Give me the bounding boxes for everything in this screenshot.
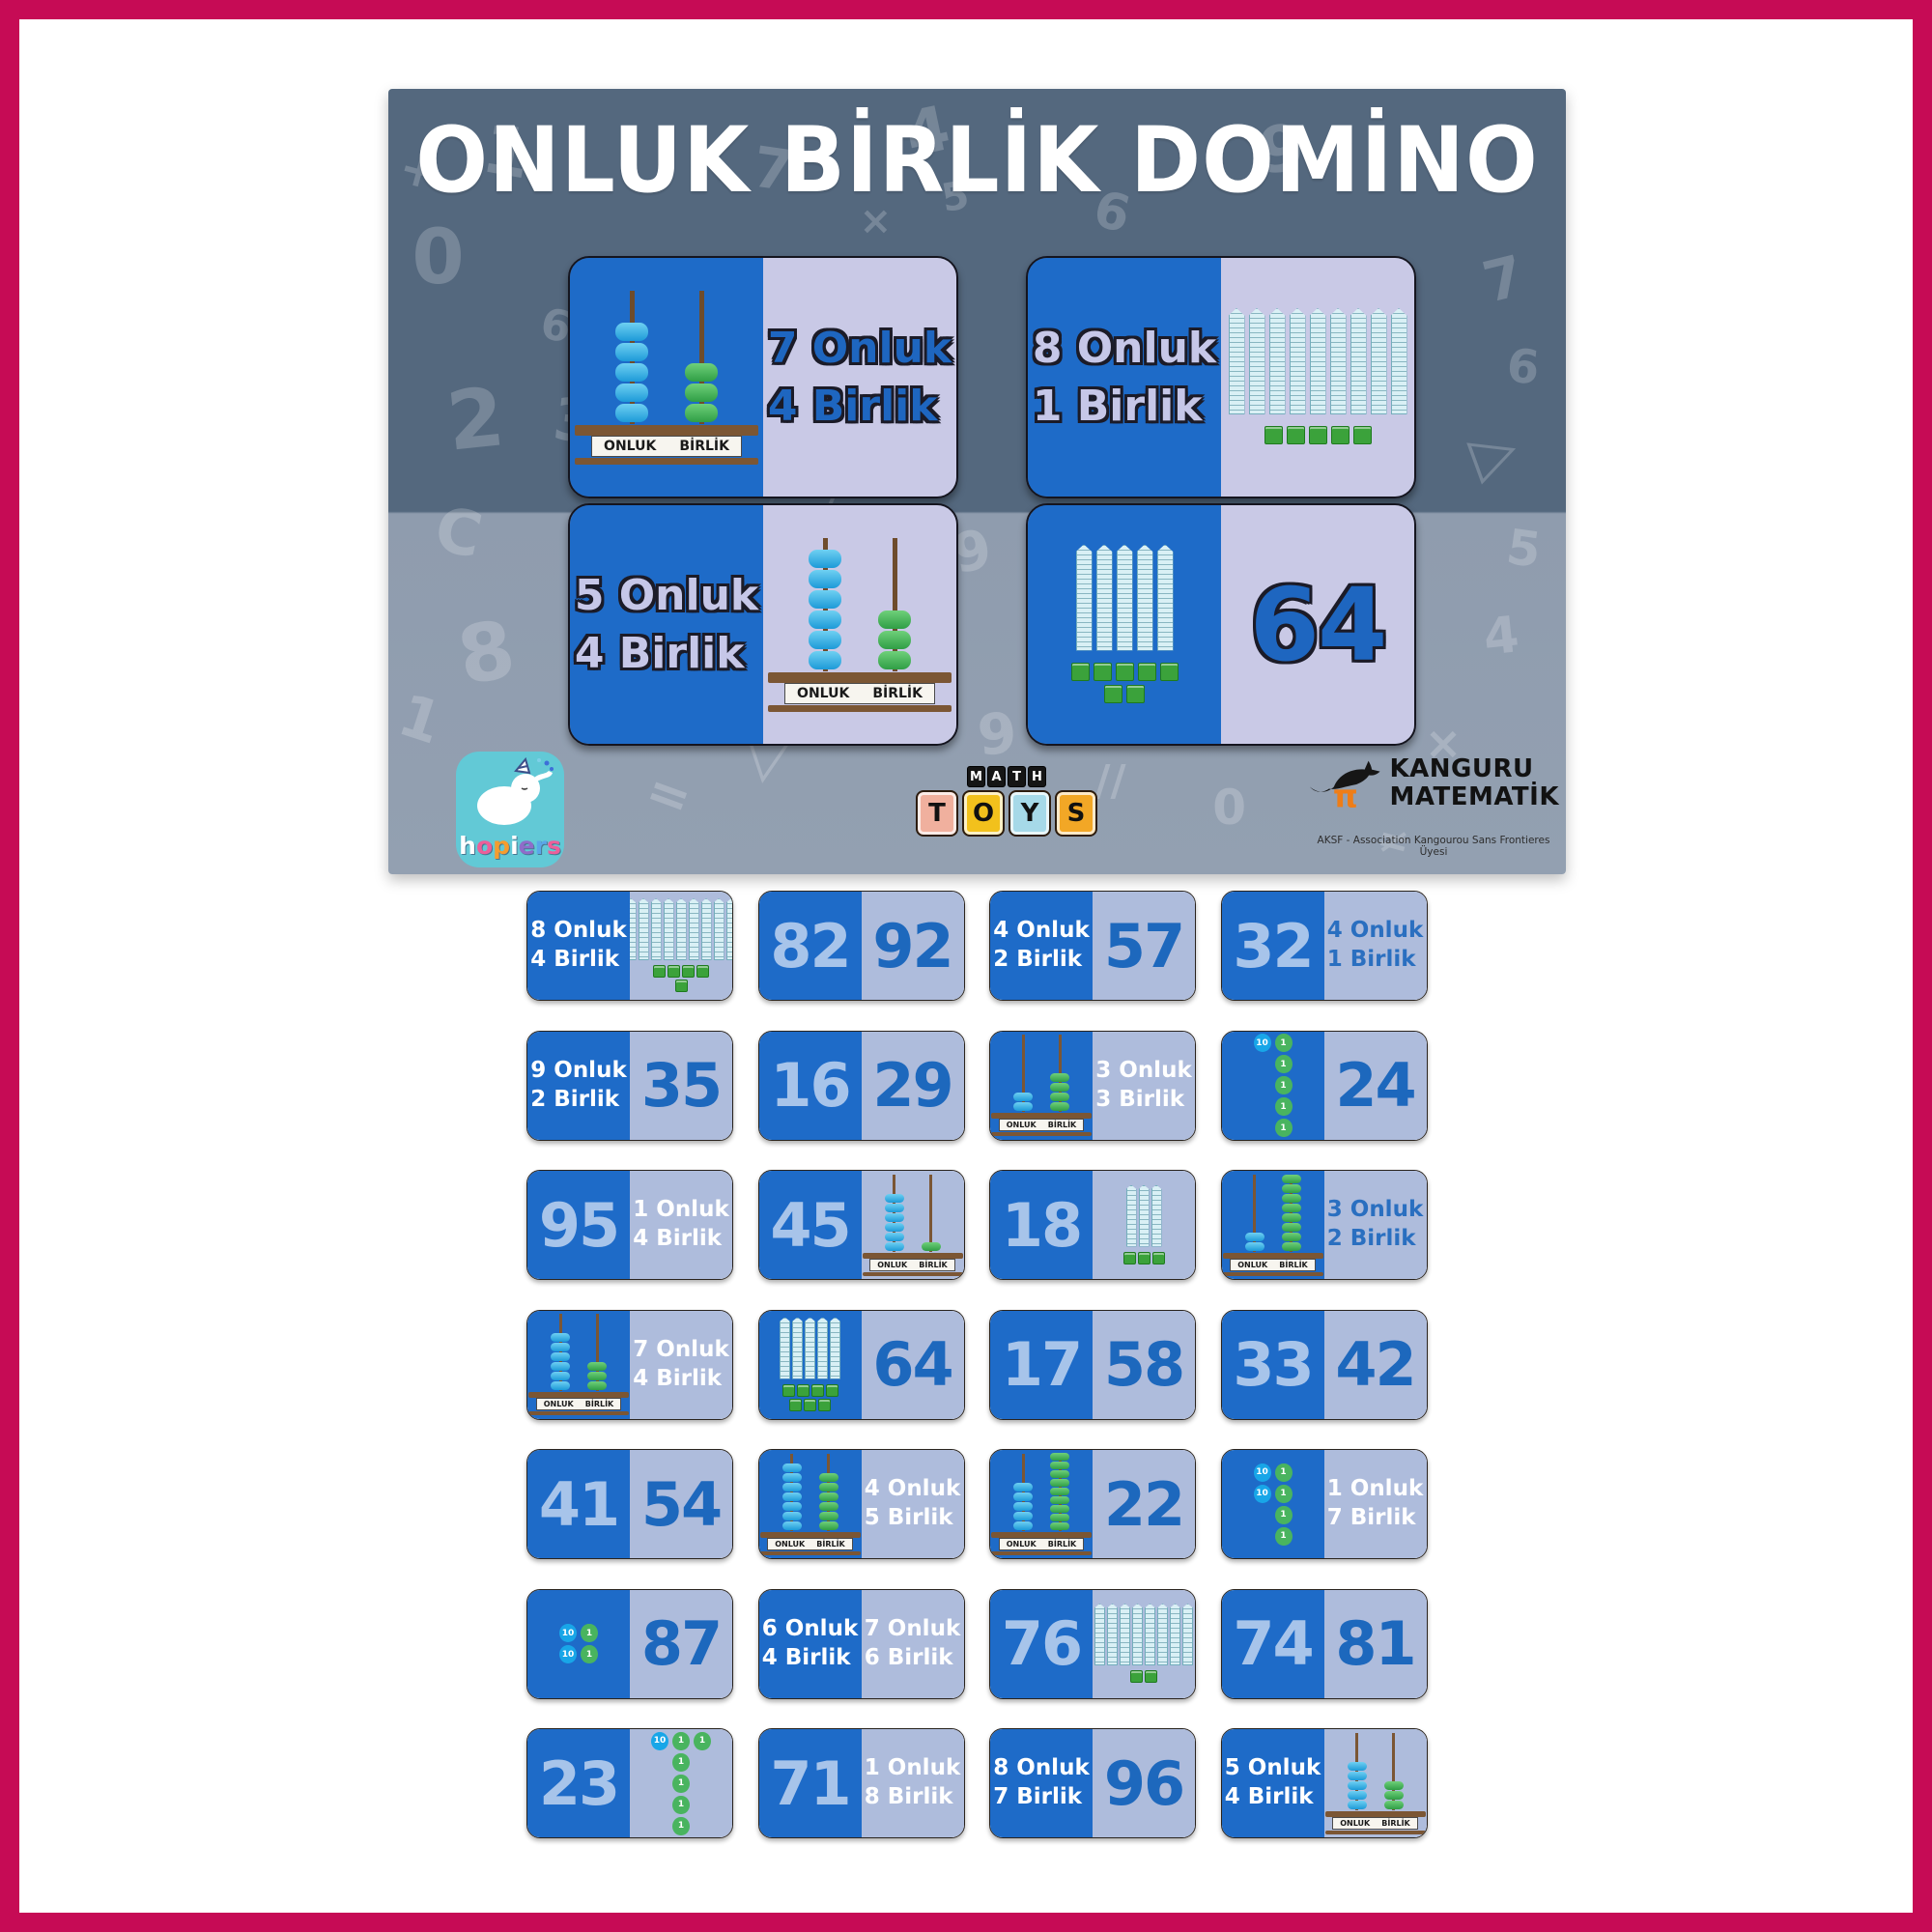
- one-cube: [782, 1384, 795, 1397]
- game-box: 147960+236C81×53176▷549✓▽=9//0×≠○ ONLUK …: [388, 89, 1566, 874]
- abacus-base: [528, 1411, 629, 1415]
- ones-rod: [1281, 1175, 1302, 1252]
- one-counter: 1: [672, 1796, 690, 1814]
- abacus-bead: [1050, 1102, 1069, 1111]
- one-counter: 1: [694, 1732, 711, 1750]
- abacus-bead: [1348, 1781, 1367, 1790]
- one-cube: [653, 965, 666, 978]
- abacus-base: [1223, 1272, 1323, 1276]
- domino-half-label: 1 Onluk7 Birlik: [1324, 1450, 1427, 1558]
- abacus-bead: [615, 404, 648, 422]
- abacus-bead: [809, 651, 841, 669]
- domino-half-label: 5 Onluk4 Birlik: [570, 505, 763, 744]
- domino-half-number: 64: [862, 1311, 964, 1419]
- ten-rod: [1170, 1604, 1180, 1665]
- hopiers-letter: o: [476, 832, 493, 860]
- abacus-bead: [819, 1502, 838, 1511]
- doodle-glyph: 7: [1476, 242, 1530, 316]
- ones-cubes: [647, 964, 715, 993]
- one-cube: [668, 965, 680, 978]
- doodle-glyph: ▷: [1462, 413, 1526, 493]
- abacus-bead: [551, 1333, 570, 1342]
- abacus-bead: [587, 1362, 607, 1371]
- one-cube: [1123, 1252, 1136, 1264]
- doodle-glyph: 0: [1212, 780, 1246, 836]
- ten-rod: [630, 898, 637, 960]
- hopiers-letter: e: [519, 832, 535, 860]
- domino-half-number: 45: [759, 1171, 862, 1279]
- domino-number: 23: [539, 1748, 618, 1819]
- math-letter-tile: H: [1028, 766, 1046, 787]
- domino-half-number: 82: [759, 892, 862, 1000]
- tens-rod: [1244, 1175, 1265, 1252]
- ten-rod: [792, 1318, 803, 1379]
- domino-tile: ONLUKBİRLİK7 Onluk4 Birlik: [526, 1310, 733, 1420]
- ten-rod: [726, 898, 733, 960]
- domino-half-blocks: [1028, 505, 1221, 744]
- domino-half-number: 35: [630, 1032, 732, 1140]
- domino-number: 32: [1233, 911, 1312, 981]
- birlik-label: BİRLİK: [679, 439, 729, 454]
- domino-number: 92: [872, 911, 952, 981]
- abacus-bead: [1050, 1496, 1069, 1504]
- domino-half-number: 24: [1324, 1032, 1427, 1140]
- domino-tile: 1758: [989, 1310, 1196, 1420]
- domino-half-number: 96: [1093, 1729, 1195, 1837]
- ten-rod: [664, 898, 674, 960]
- domino-half-number: 58: [1093, 1311, 1195, 1419]
- one-cube: [1126, 685, 1145, 703]
- domino-number: 71: [770, 1748, 849, 1819]
- domino-half-number: 32: [1222, 892, 1324, 1000]
- domino-half-number: 41: [527, 1450, 630, 1558]
- abacus-bead: [551, 1372, 570, 1380]
- doodle-glyph: 4: [1481, 606, 1521, 667]
- doodle-glyph: 8: [451, 603, 522, 702]
- ten-rod: [1182, 1604, 1193, 1665]
- tens-rod: [1012, 1454, 1034, 1531]
- birlik-label: BİRLİK: [1048, 1540, 1077, 1548]
- one-cube: [682, 965, 695, 978]
- one-counter: 1: [581, 1624, 598, 1642]
- domino-half-number: 81: [1324, 1590, 1427, 1698]
- pi-symbol: π: [1333, 778, 1358, 814]
- kanguru-line1: KANGURU: [1389, 755, 1559, 783]
- ten-rod: [1157, 1604, 1168, 1665]
- domino-half-label: 4 Onluk5 Birlik: [862, 1450, 964, 1558]
- tens-rods: [1094, 1604, 1194, 1665]
- domino-number: 64: [1250, 566, 1386, 684]
- domino-label: 3 Onluk2 Birlik: [1327, 1196, 1424, 1254]
- domino-label: 6 Onluk4 Birlik: [762, 1615, 859, 1673]
- one-cube: [797, 1384, 810, 1397]
- abacus-bead: [1050, 1093, 1069, 1101]
- one-cube: [1071, 663, 1090, 681]
- abacus-bead: [1013, 1492, 1033, 1501]
- domino-half-label: 5 Onluk4 Birlik: [1222, 1729, 1324, 1837]
- abacus-bead: [809, 611, 841, 629]
- abacus-bead: [1050, 1073, 1069, 1082]
- domino-half-label: 7 Onluk4 Birlik: [630, 1311, 732, 1419]
- domino-half-number: 17: [990, 1311, 1093, 1419]
- domino-half-counters: 101111111111: [630, 1729, 732, 1837]
- one-counter: 1: [1275, 1119, 1293, 1137]
- abacus-bead: [885, 1204, 904, 1212]
- kanguru-subtext: AKSF - Association Kangourou Sans Fronti…: [1308, 835, 1559, 858]
- abacus-base: [575, 458, 758, 465]
- tens-rod: [1012, 1035, 1034, 1112]
- ten-rod: [805, 1318, 815, 1379]
- domino-half-label: 4 Onluk2 Birlik: [990, 892, 1093, 1000]
- abacus-bead: [685, 363, 718, 382]
- domino-half-label: 8 Onluk1 Birlik: [1028, 258, 1221, 497]
- abacus-bead: [685, 384, 718, 402]
- domino-tile: ONLUKBİRLİK22: [989, 1449, 1196, 1559]
- abacus-bead: [1050, 1514, 1069, 1521]
- abacus-bead: [1013, 1093, 1033, 1101]
- domino-tile: 8 Onluk4 Birlik: [526, 891, 733, 1001]
- abacus-bead: [587, 1381, 607, 1390]
- domino-tile: 1629: [758, 1031, 965, 1141]
- one-cube: [789, 1399, 802, 1411]
- one-cube: [818, 1399, 831, 1411]
- domino-tile: 23101111111111: [526, 1728, 733, 1838]
- ten-rod: [1107, 1604, 1118, 1665]
- domino-half-counters: 10111111111: [1222, 1032, 1324, 1140]
- birlik-label: BİRLİK: [1381, 1819, 1410, 1828]
- ten-rod: [689, 898, 699, 960]
- math-letter-tile: M: [967, 766, 985, 787]
- domino-half-blocks: [1093, 1171, 1195, 1279]
- hopiers-letter: i: [510, 832, 519, 860]
- ten-counter: 10: [1254, 1463, 1271, 1482]
- domino-half-label: 1 Onluk8 Birlik: [862, 1729, 964, 1837]
- elephant-icon: [466, 757, 554, 827]
- abacus-bead: [782, 1521, 802, 1530]
- abacus-graphic: ONLUKBİRLİK: [528, 1314, 629, 1415]
- domino-half-abacus: ONLUKBİRLİK: [759, 1450, 862, 1558]
- base-ten-blocks: [1094, 1604, 1194, 1684]
- abacus-bead: [1282, 1242, 1301, 1251]
- onluk-label: ONLUK: [1007, 1540, 1037, 1548]
- tens-rod: [550, 1314, 571, 1391]
- abacus-base: [768, 705, 952, 712]
- domino-half-number: 87: [630, 1590, 732, 1698]
- doodle-glyph: C: [429, 494, 488, 573]
- domino-half-number: 76: [990, 1590, 1093, 1698]
- tens-rods: [630, 898, 732, 960]
- math-letter-tile: A: [987, 766, 1006, 787]
- kangaroo-pi-icon: π: [1308, 742, 1389, 825]
- domino-label: 1 Onluk8 Birlik: [865, 1754, 961, 1812]
- math-letter-tiles: MATH: [966, 765, 1047, 788]
- domino-half-number: 23: [527, 1729, 630, 1837]
- domino-half-number: 95: [527, 1171, 630, 1279]
- domino-tile: 6 Onluk4 Birlik7 Onluk6 Birlik: [758, 1589, 965, 1699]
- one-cube: [675, 980, 688, 992]
- math-toys-logo: MATH TOYS: [910, 765, 1103, 838]
- one-counter: 1: [1275, 1097, 1293, 1116]
- domino-tile: 9 Onluk2 Birlik35: [526, 1031, 733, 1141]
- domino-number: 54: [641, 1469, 721, 1540]
- abacus-bead: [809, 550, 841, 568]
- doodle-glyph: 5: [1503, 519, 1545, 579]
- ten-rod: [1371, 308, 1387, 414]
- one-counter: 1: [672, 1753, 690, 1772]
- hopiers-wordmark: hopiers: [459, 832, 561, 860]
- domino-number: 22: [1104, 1469, 1183, 1540]
- domino-tile: 3342: [1221, 1310, 1428, 1420]
- domino-half-number: 64: [1221, 505, 1414, 744]
- domino-half-blocks: [630, 892, 732, 1000]
- base-ten-blocks: [1227, 308, 1409, 446]
- one-cube: [1264, 426, 1283, 444]
- abacus-graphic: ONLUKBİRLİK: [1223, 1175, 1323, 1276]
- abacus-bead: [1050, 1083, 1069, 1092]
- abacus-label-strip: ONLUKBİRLİK: [784, 683, 935, 704]
- birlik-label: BİRLİK: [585, 1400, 614, 1408]
- domino-half-number: 54: [630, 1450, 732, 1558]
- tens-rod: [884, 1175, 905, 1252]
- domino-tile: 10110187: [526, 1589, 733, 1699]
- toys-letter-tile: O: [962, 790, 1005, 837]
- one-cube: [1353, 426, 1372, 444]
- ones-rod: [586, 1314, 608, 1391]
- box-domino: 8 Onluk1 Birlik: [1026, 256, 1416, 498]
- ten-rod: [1145, 1604, 1155, 1665]
- domino-number: 82: [770, 911, 849, 981]
- domino-label: 8 Onluk1 Birlik: [1033, 320, 1216, 435]
- abacus-bead: [885, 1213, 904, 1222]
- abacus-label-strip: ONLUKBİRLİK: [536, 1398, 622, 1410]
- domino-tile: 45ONLUKBİRLİK: [758, 1170, 965, 1280]
- domino-label: 8 Onluk7 Birlik: [993, 1754, 1090, 1812]
- domino-half-number: 18: [990, 1171, 1093, 1279]
- hopiers-letter: r: [535, 832, 547, 860]
- abacus-bead: [1013, 1521, 1033, 1530]
- domino-half-label: 7 Onluk6 Birlik: [862, 1590, 964, 1698]
- abacus-bead: [885, 1194, 904, 1203]
- onluk-label: ONLUK: [797, 686, 849, 701]
- kanguru-line2: MATEMATİK: [1389, 783, 1559, 811]
- abacus-bead: [878, 651, 911, 669]
- one-counter: 1: [1275, 1485, 1293, 1503]
- domino-half-label: 3 Onluk2 Birlik: [1324, 1171, 1427, 1279]
- one-cube: [1309, 426, 1327, 444]
- ten-counter: 10: [1254, 1485, 1271, 1503]
- tens-rods: [1227, 308, 1409, 414]
- abacus-bead: [782, 1492, 802, 1501]
- birlik-label: BİRLİK: [872, 686, 923, 701]
- abacus-label-strip: ONLUKBİRLİK: [1230, 1259, 1316, 1271]
- domino-half-number: 42: [1324, 1311, 1427, 1419]
- ones-cubes: [1110, 1669, 1178, 1684]
- ten-rod: [1096, 545, 1113, 651]
- abacus-base: [575, 425, 758, 436]
- abacus-bead: [1050, 1453, 1069, 1461]
- toys-letter-tiles: TOYS: [914, 788, 1099, 838]
- abacus-bead: [782, 1512, 802, 1520]
- one-counter: 1: [1275, 1527, 1293, 1546]
- domino-half-label: 6 Onluk4 Birlik: [759, 1590, 862, 1698]
- base-ten-blocks: [777, 1318, 844, 1412]
- ones-rod: [1049, 1454, 1070, 1531]
- domino-number: 81: [1335, 1608, 1414, 1679]
- doodle-glyph: 9: [975, 699, 1019, 768]
- domino-tile: 324 Onluk1 Birlik: [1221, 891, 1428, 1001]
- hopiers-logo: hopiers: [456, 752, 564, 867]
- abacus-graphic: ONLUKBİRLİK: [575, 291, 758, 465]
- abacus-graphic: ONLUKBİRLİK: [991, 1035, 1092, 1136]
- doodle-glyph: 1: [390, 681, 449, 757]
- abacus-bead: [615, 363, 648, 382]
- doodle-glyph: 0: [412, 214, 464, 301]
- abacus-graphic: ONLUKBİRLİK: [1325, 1733, 1426, 1834]
- hopiers-letter: s: [547, 832, 561, 860]
- domino-label: 5 Onluk4 Birlik: [1225, 1754, 1321, 1812]
- onluk-label: ONLUK: [544, 1400, 574, 1408]
- ones-rod: [921, 1175, 942, 1252]
- box-domino: 64: [1026, 503, 1416, 746]
- ones-rod: [876, 538, 913, 671]
- abacus-bead: [782, 1502, 802, 1511]
- abacus-bead: [551, 1362, 570, 1371]
- domino-number: 17: [1002, 1329, 1081, 1400]
- abacus-bead: [1282, 1194, 1301, 1203]
- abacus-bead: [1050, 1488, 1069, 1495]
- domino-tile: 5 Onluk4 BirlikONLUKBİRLİK: [1221, 1728, 1428, 1838]
- one-cube: [1138, 663, 1156, 681]
- domino-label: 4 Onluk2 Birlik: [993, 917, 1090, 975]
- ten-rod: [1076, 545, 1093, 651]
- ten-rod: [1330, 308, 1347, 414]
- abacus-bead: [615, 323, 648, 341]
- domino-tile: 10110111111 Onluk7 Birlik: [1221, 1449, 1428, 1559]
- ten-rod: [1132, 1604, 1143, 1665]
- domino-half-label: 3 Onluk3 Birlik: [1093, 1032, 1195, 1140]
- place-value-counters: 1011011111: [1254, 1462, 1293, 1547]
- abacus-bead: [885, 1223, 904, 1232]
- product-photo: 147960+236C81×53176▷549✓▽=9//0×≠○ ONLUK …: [0, 0, 1932, 1932]
- abacus-bead: [1282, 1233, 1301, 1241]
- domino-tile: 18: [989, 1170, 1196, 1280]
- ten-counter: 10: [559, 1624, 577, 1642]
- ten-rod: [780, 1318, 790, 1379]
- domino-tile: 7481: [1221, 1589, 1428, 1699]
- abacus-bead: [1013, 1483, 1033, 1492]
- abacus-label-strip: ONLUKBİRLİK: [1332, 1817, 1418, 1830]
- abacus-label-strip: ONLUKBİRLİK: [999, 1119, 1085, 1131]
- abacus-bead: [615, 384, 648, 402]
- domino-number: 57: [1104, 911, 1183, 981]
- abacus-base: [991, 1551, 1092, 1555]
- domino-half-label: 7 Onluk4 Birlik: [763, 258, 956, 497]
- domino-tile: 64: [758, 1310, 965, 1420]
- ones-cubes: [1062, 661, 1187, 705]
- ten-rod: [701, 898, 712, 960]
- domino-tile: 951 Onluk4 Birlik: [526, 1170, 733, 1280]
- ten-rod: [830, 1318, 840, 1379]
- one-counter: 1: [672, 1732, 690, 1750]
- domino-tile: 76: [989, 1589, 1196, 1699]
- birlik-label: BİRLİK: [1279, 1261, 1308, 1269]
- one-counter: 1: [672, 1775, 690, 1793]
- domino-half-blocks: [759, 1311, 862, 1419]
- abacus-bead: [809, 590, 841, 609]
- onluk-label: ONLUK: [775, 1540, 805, 1548]
- abacus-label-strip: ONLUKBİRLİK: [767, 1538, 853, 1550]
- domino-number: 33: [1233, 1329, 1312, 1400]
- onluk-label: ONLUK: [604, 439, 656, 454]
- domino-half-label: 8 Onluk4 Birlik: [527, 892, 630, 1000]
- ten-rod: [1229, 308, 1245, 414]
- abacus-bead: [922, 1242, 941, 1251]
- abacus-bead: [615, 343, 648, 361]
- domino-label: 8 Onluk4 Birlik: [530, 917, 627, 975]
- birlik-label: BİRLİK: [816, 1540, 845, 1548]
- ones-rod: [1383, 1733, 1405, 1810]
- toys-letter-tile: Y: [1009, 790, 1051, 837]
- abacus-label-strip: ONLUKBİRLİK: [999, 1538, 1085, 1550]
- abacus-label-strip: ONLUKBİRLİK: [591, 436, 742, 457]
- domino-half-number: 74: [1222, 1590, 1324, 1698]
- abacus-bead: [878, 631, 911, 649]
- ten-rod: [1269, 308, 1286, 414]
- doodle-glyph: =: [639, 758, 700, 831]
- one-cube: [1094, 663, 1112, 681]
- onluk-label: ONLUK: [1340, 1819, 1370, 1828]
- abacus-bead: [782, 1463, 802, 1472]
- abacus-graphic: ONLUKBİRLİK: [760, 1454, 861, 1555]
- abacus-bead: [1050, 1479, 1069, 1487]
- kanguru-matematik-logo: π KANGURU MATEMATİK AKSF - Association K…: [1308, 742, 1559, 867]
- domino-half-number: 57: [1093, 892, 1195, 1000]
- domino-number: 24: [1335, 1050, 1414, 1121]
- hopiers-letter: h: [459, 832, 476, 860]
- abacus-bead: [809, 631, 841, 649]
- one-counter: 1: [672, 1817, 690, 1835]
- abacus-bead: [587, 1372, 607, 1380]
- abacus-base: [760, 1551, 861, 1555]
- abacus-bead: [551, 1352, 570, 1361]
- one-cube: [1116, 663, 1134, 681]
- abacus-bead: [809, 570, 841, 588]
- domino-half-number: 22: [1093, 1450, 1195, 1558]
- domino-tile: ONLUKBİRLİK3 Onluk2 Birlik: [1221, 1170, 1428, 1280]
- abacus-label-strip: ONLUKBİRLİK: [869, 1259, 955, 1271]
- ten-rod: [676, 898, 687, 960]
- one-counter: 1: [1275, 1506, 1293, 1524]
- one-cube: [1138, 1252, 1151, 1264]
- domino-half-label: 9 Onluk2 Birlik: [527, 1032, 630, 1140]
- domino-tile: 711 Onluk8 Birlik: [758, 1728, 965, 1838]
- ten-counter: 10: [559, 1645, 577, 1663]
- domino-label: 7 Onluk4 Birlik: [768, 320, 952, 435]
- ones-cubes: [1255, 424, 1380, 446]
- hopiers-letter: p: [493, 832, 510, 860]
- one-cube: [1130, 1670, 1143, 1683]
- abacus-bead: [551, 1343, 570, 1351]
- domino-label: 5 Onluk4 Birlik: [575, 567, 758, 682]
- tens-rod: [807, 538, 843, 671]
- ones-rod: [818, 1454, 839, 1531]
- abacus-graphic: ONLUKBİRLİK: [991, 1454, 1092, 1555]
- photo-background: 147960+236C81×53176▷549✓▽=9//0×≠○ ONLUK …: [19, 19, 1913, 1913]
- domino-half-number: 29: [862, 1032, 964, 1140]
- one-cube: [1287, 426, 1305, 444]
- tens-rods: [1125, 1185, 1163, 1247]
- domino-number: 42: [1335, 1329, 1414, 1400]
